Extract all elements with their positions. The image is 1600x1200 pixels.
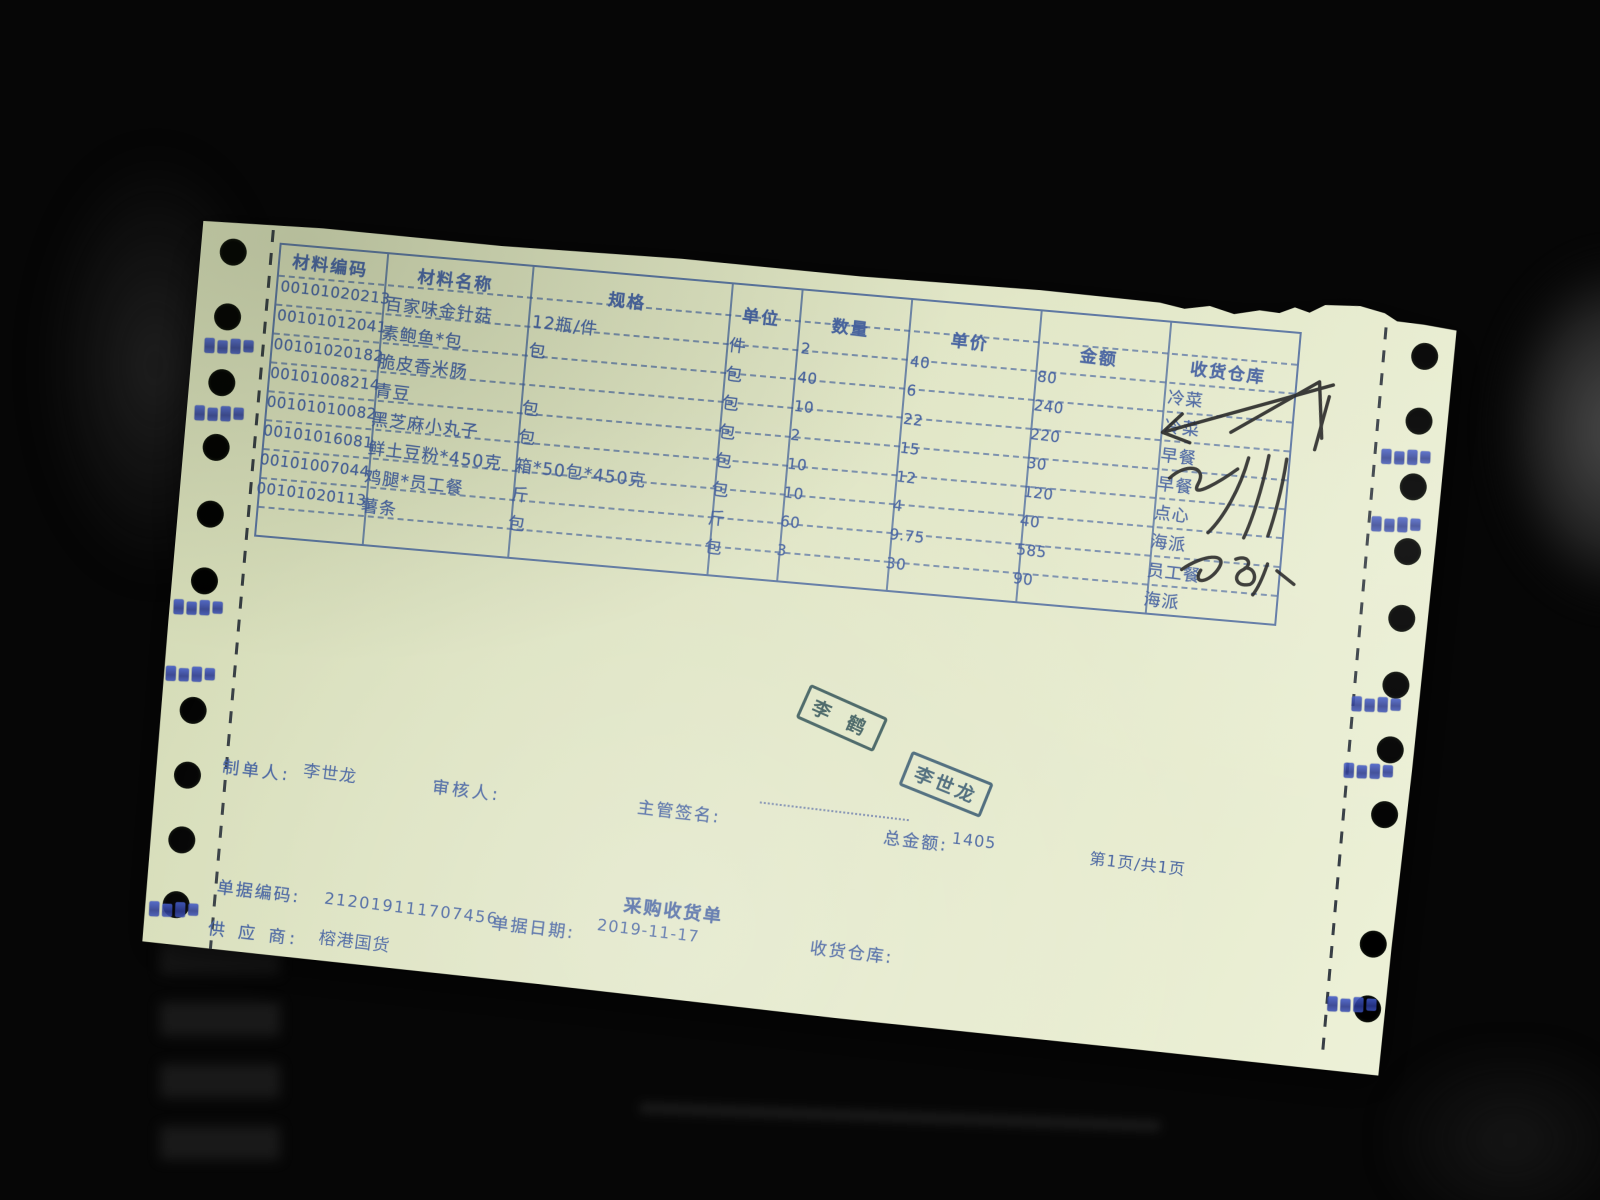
table-cell: 30 [1026, 454, 1048, 474]
background-corner-shade [1380, 1040, 1600, 1200]
supplier-value: 榕港国货 [317, 923, 391, 956]
table-cell: 青豆 [374, 376, 413, 405]
maker-label: 制单人: [221, 753, 292, 786]
table-cell: 包 [507, 509, 528, 536]
table-cell: 包 [724, 359, 745, 386]
page-info: 第1页/共1页 [1088, 845, 1187, 880]
doc-code-value: 212019111707456 [323, 889, 499, 929]
table-cell: 00101012041 [276, 306, 388, 337]
signature-line [760, 801, 909, 821]
signature-stroke [1181, 554, 1222, 582]
table-cell: 00101020213 [280, 277, 392, 308]
signature-stroke [1208, 455, 1249, 536]
total-value: 1405 [951, 829, 998, 853]
table-cell: 10 [783, 483, 805, 503]
table-cell: 斤 [510, 480, 531, 507]
table-cell: 包 [703, 532, 724, 559]
ink-smudge [173, 599, 222, 616]
table-cell: 10 [786, 454, 808, 474]
total-label: 总金额: [882, 823, 949, 855]
table-cell: 30 [885, 554, 907, 574]
background-table-edge [640, 1103, 1160, 1131]
signature-stroke [1231, 375, 1327, 441]
table-cell: 箱*50包*450克 [514, 451, 648, 491]
ink-smudge [1344, 763, 1393, 780]
doc-date-label: 单据日期: [490, 909, 576, 944]
table-cell: 40 [1019, 511, 1041, 531]
table-cell: 6 [906, 381, 918, 400]
printed-text-layer: 制单人: 李世龙 审核人: 主管签名: 总金额: 1405 第1页/共1页 单据… [116, 216, 1456, 1108]
column-header: 数量 [830, 312, 871, 341]
table-cell: 00101020182 [273, 335, 385, 366]
receive-warehouse-label: 收货仓库: [809, 934, 895, 969]
signature-stroke [1276, 571, 1295, 585]
table-cell: 件 [728, 331, 749, 358]
maker-value: 李世龙 [302, 756, 359, 787]
table-cell: 15 [899, 439, 921, 459]
table-cell: 2 [800, 339, 812, 358]
supervisor-sign-label: 主管签名: [636, 793, 722, 828]
table-cell: 包 [717, 417, 738, 444]
paper-sheet: 制单人: 李世龙 审核人: 主管签名: 总金额: 1405 第1页/共1页 单据… [138, 202, 1460, 1081]
receipt-paper: 制单人: 李世龙 审核人: 主管签名: 总金额: 1405 第1页/共1页 单据… [138, 202, 1460, 1081]
signature-stroke [1234, 557, 1257, 585]
table-cell: 00101007044 [259, 450, 371, 481]
table-cell: 包 [521, 394, 542, 421]
table-cell: 9.75 [888, 525, 925, 547]
handwritten-signatures [1102, 359, 1443, 646]
photo-stage: 制单人: 李世龙 审核人: 主管签名: 总金额: 1405 第1页/共1页 单据… [0, 0, 1600, 1200]
column-header: 单位 [741, 301, 782, 330]
column-header: 材料名称 [416, 262, 494, 296]
ink-smudge [166, 666, 215, 683]
ink-smudge [1351, 696, 1400, 713]
table-cell: 60 [779, 512, 801, 532]
table-cell: 包 [721, 388, 742, 415]
table-cell: 2 [790, 426, 802, 445]
column-header: 金额 [1079, 341, 1120, 370]
ink-smudge [149, 901, 198, 918]
table-cell: 薯条 [360, 491, 399, 520]
table-cell: 40 [909, 352, 931, 372]
doc-code-label: 单据编码: [216, 873, 302, 908]
column-header: 单价 [950, 326, 991, 355]
table-cell: 90 [1012, 569, 1034, 589]
table-cell: 00101010082 [266, 392, 378, 423]
table-cell: 220 [1029, 425, 1061, 446]
ink-smudge [204, 338, 253, 355]
table-cell: 包 [714, 446, 735, 473]
table-cell: 120 [1022, 483, 1054, 504]
table-cell: 80 [1036, 367, 1058, 387]
column-header: 规格 [607, 285, 648, 314]
table-cell: 240 [1033, 396, 1065, 417]
ink-smudge [194, 405, 243, 422]
table-cell: 40 [796, 368, 818, 388]
table-cell: 包 [710, 475, 731, 502]
signature-stroke [1268, 458, 1287, 537]
background-blurred-object [1510, 270, 1600, 590]
signature-stroke [1169, 463, 1238, 493]
table-cell: 包 [527, 336, 548, 363]
column-header: 材料编码 [291, 247, 369, 281]
table-cell: 3 [776, 541, 788, 560]
ink-smudge [1371, 516, 1420, 533]
table-cell: 素鲍鱼*包 [381, 318, 465, 352]
table-cell: 12瓶/件 [531, 307, 600, 340]
table-cell: 00101020113 [256, 479, 368, 510]
ink-smudge [1327, 996, 1376, 1013]
supplier-label: 供 应 商: [207, 914, 301, 950]
table-cell: 00101008214 [269, 364, 381, 395]
ink-smudge [1381, 449, 1430, 466]
table-cell: 12 [895, 467, 917, 487]
table-cell: 斤 [707, 503, 728, 530]
reviewer-label: 审核人: [431, 773, 502, 806]
table-cell: 10 [793, 397, 815, 417]
paper-content: 制单人: 李世龙 审核人: 主管签名: 总金额: 1405 第1页/共1页 单据… [138, 218, 1458, 1073]
table-cell: 22 [902, 410, 924, 430]
table-cell: 00101016081 [262, 421, 374, 452]
table-cell: 585 [1016, 540, 1048, 561]
signature-stroke [1163, 371, 1334, 447]
table-cell: 4 [892, 496, 904, 515]
table-cell: 包 [517, 422, 538, 449]
